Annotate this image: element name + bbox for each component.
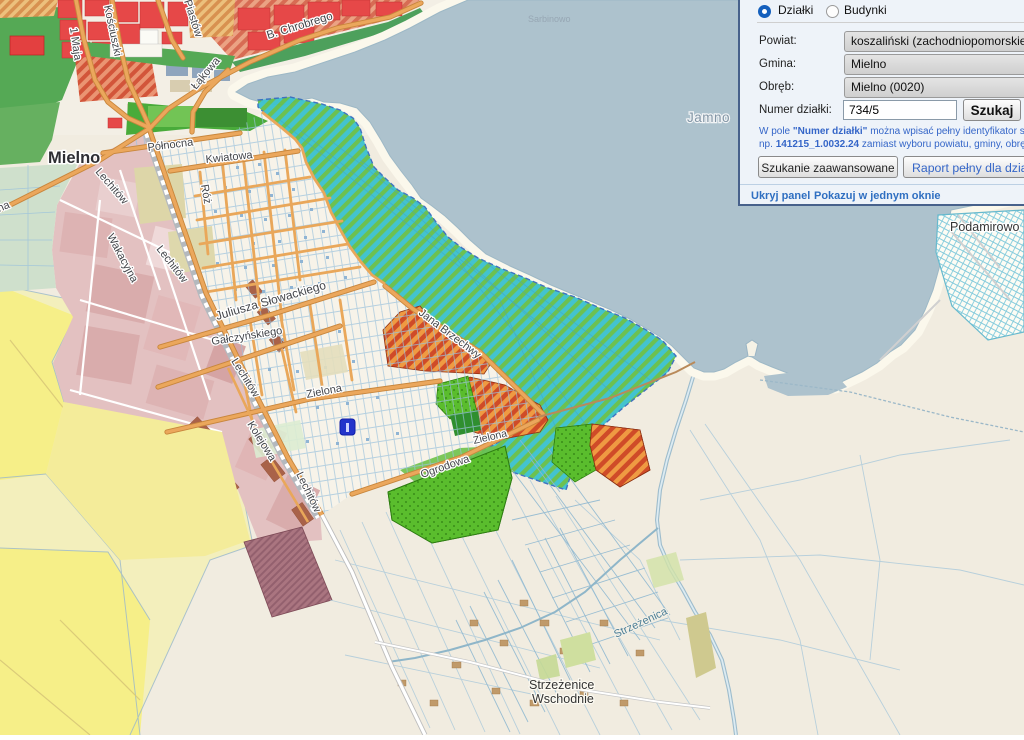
- svg-text:Wschodnie: Wschodnie: [532, 692, 594, 706]
- svg-text:Mielno: Mielno: [48, 149, 100, 167]
- svg-text:Jamno: Jamno: [687, 110, 730, 125]
- svg-text:Sarbinowo: Sarbinowo: [528, 14, 571, 24]
- svg-text:Strzeżenice: Strzeżenice: [529, 678, 594, 692]
- svg-text:Podamirowo: Podamirowo: [950, 220, 1020, 234]
